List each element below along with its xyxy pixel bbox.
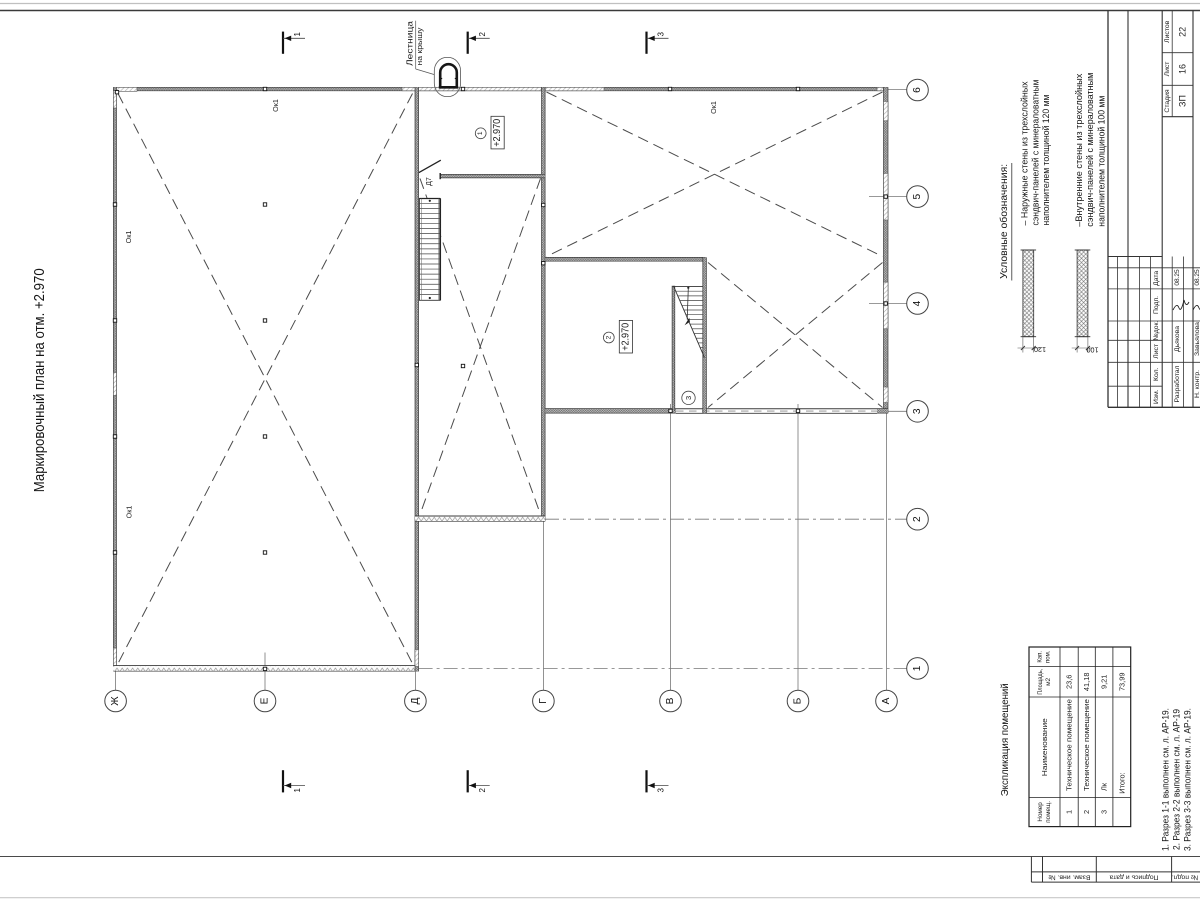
svg-text:3: 3	[912, 408, 923, 414]
svg-text:Ок1: Ок1	[271, 99, 280, 112]
svg-text:В: В	[665, 697, 676, 704]
svg-text:на крышу: на крышу	[417, 27, 424, 66]
svg-text:3: 3	[684, 396, 693, 400]
svg-text:9,21: 9,21	[1100, 675, 1109, 689]
svg-text:1: 1	[293, 787, 302, 792]
svg-text:2: 2	[1082, 810, 1091, 814]
svg-text:сэндвич-панелей с минераловатн: сэндвич-панелей с минераловатным	[1085, 73, 1095, 227]
svg-text:23,6: 23,6	[1065, 675, 1074, 689]
svg-text:3: 3	[657, 31, 666, 36]
svg-text:22: 22	[1178, 27, 1188, 37]
svg-text:3: 3	[1100, 810, 1109, 814]
svg-text:1: 1	[912, 665, 923, 671]
svg-text:Е: Е	[260, 697, 271, 704]
svg-text:2: 2	[478, 31, 487, 36]
svg-text:Г: Г	[538, 698, 549, 704]
svg-text:Б: Б	[793, 697, 804, 704]
svg-text:Техническое помещение: Техническое помещение	[1065, 699, 1074, 791]
svg-text:Н. контр.: Н. контр.	[1194, 370, 1200, 398]
svg-text:73,99: 73,99	[1117, 673, 1126, 692]
svg-text:Кол.: Кол.	[1153, 367, 1160, 381]
svg-text:наполнителем толщиной 120 мм: наполнителем толщиной 120 мм	[1041, 95, 1051, 226]
svg-text:Д7: Д7	[426, 177, 433, 186]
svg-text:100: 100	[1086, 346, 1098, 355]
svg-text:ЗП: ЗП	[1178, 95, 1188, 107]
svg-text:Взам. инв. №: Взам. инв. №	[1048, 874, 1090, 881]
svg-text:Ок1: Ок1	[124, 231, 133, 244]
svg-text:Лист: Лист	[1164, 62, 1171, 77]
svg-text:– Наружные стены из трехслойны: – Наружные стены из трехслойных	[1019, 81, 1029, 226]
svg-text:Изм.: Изм.	[1153, 389, 1160, 404]
svg-text:Дата: Дата	[1153, 271, 1160, 286]
svg-text:Экспликация помещений: Экспликация помещений	[999, 683, 1011, 796]
svg-text:Завьялова: Завьялова	[1194, 322, 1200, 356]
svg-text:Стадия: Стадия	[1164, 89, 1171, 112]
svg-text:Лестница: Лестница	[405, 21, 415, 66]
svg-text:Итого:: Итого:	[1117, 772, 1126, 793]
svg-text:2. Разрез 2-2 выполнен см. л.: 2. Разрез 2-2 выполнен см. л. АР-19	[1172, 709, 1182, 850]
svg-text:–Внутренние стены из трехслойн: –Внутренние стены из трехслойных	[1074, 73, 1084, 227]
svg-text:Лк: Лк	[1100, 782, 1109, 791]
svg-text:Инв. № подл.: Инв. № подл.	[1172, 874, 1200, 881]
svg-text:А: А	[881, 697, 892, 704]
svg-text:Площадь,: Площадь,	[1037, 669, 1044, 695]
svg-text:2: 2	[478, 787, 487, 792]
svg-text:Подп.: Подп.	[1153, 296, 1160, 314]
svg-text:Дьякова: Дьякова	[1174, 326, 1181, 352]
svg-text:№док.: №док.	[1153, 321, 1160, 341]
svg-text:наполнителем толщиной 100 мм: наполнителем толщиной 100 мм	[1097, 96, 1107, 227]
svg-text:Лист: Лист	[1153, 344, 1160, 359]
svg-text:Ж: Ж	[110, 696, 121, 706]
svg-text:6: 6	[912, 87, 923, 93]
svg-text:Наименование: Наименование	[1040, 718, 1049, 776]
svg-text:08.25: 08.25	[1194, 269, 1200, 286]
svg-text:Ок1: Ок1	[124, 506, 133, 519]
svg-text:Номер: Номер	[1037, 802, 1044, 822]
svg-text:5: 5	[912, 193, 923, 199]
svg-text:Листов: Листов	[1164, 20, 1171, 42]
svg-text:1: 1	[1065, 810, 1074, 814]
svg-text:41,18: 41,18	[1082, 673, 1091, 692]
svg-text:Маркировочный план на отм. +2.: Маркировочный план на отм. +2.970	[32, 268, 48, 492]
svg-text:120: 120	[1034, 345, 1046, 354]
svg-text:1: 1	[477, 131, 484, 135]
svg-text:м2: м2	[1045, 677, 1052, 685]
svg-text:Разработал: Разработал	[1173, 365, 1181, 402]
svg-text:помещ.: помещ.	[1045, 801, 1052, 823]
svg-text:08.25: 08.25	[1174, 269, 1181, 286]
svg-text:2: 2	[912, 516, 923, 522]
svg-text:Техническое помещение: Техническое помещение	[1082, 699, 1091, 791]
svg-text:+2.970: +2.970	[492, 118, 503, 146]
svg-text:4: 4	[912, 300, 923, 306]
svg-text:+2.970: +2.970	[620, 322, 631, 350]
svg-text:1: 1	[293, 31, 302, 36]
svg-text:Кап.: Кап.	[1037, 651, 1043, 663]
svg-text:3. Разрез 3-3 выполнен см. л.: 3. Разрез 3-3 выполнен см. л. АР-19.	[1183, 708, 1193, 851]
svg-text:2: 2	[605, 335, 612, 339]
svg-text:Д: Д	[410, 697, 421, 704]
svg-text:16: 16	[1178, 64, 1188, 74]
svg-text:Условные обозначения:: Условные обозначения:	[998, 164, 1010, 279]
svg-text:Подпись и дата: Подпись и дата	[1109, 874, 1158, 881]
svg-text:пом.: пом.	[1046, 650, 1052, 663]
svg-text:сэндвич-панелей с минераловатн: сэндвич-панелей с минераловатным	[1031, 80, 1041, 226]
svg-text:3: 3	[657, 787, 666, 792]
svg-text:Ок1: Ок1	[709, 101, 718, 114]
svg-text:1. Разрез 1-1 выполнен см. л.: 1. Разрез 1-1 выполнен см. л. АР-19.	[1161, 708, 1171, 851]
